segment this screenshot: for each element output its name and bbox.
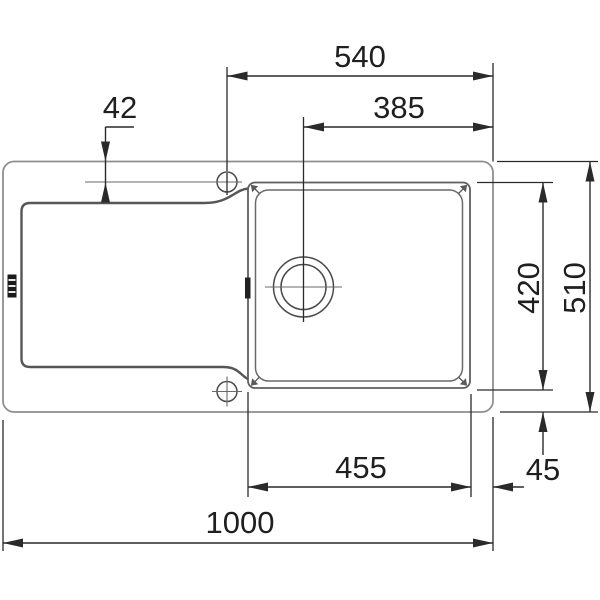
dim-overall-depth: 510 — [557, 162, 595, 413]
dim-bowl-width: 455 — [248, 450, 471, 492]
extension-lines — [3, 63, 598, 551]
sink-body — [3, 162, 493, 413]
dim-overall-width: 1000 — [3, 505, 493, 548]
dim-tap-to-right-edge: 540 — [227, 39, 493, 81]
franke-logo-badge — [8, 275, 17, 298]
dim-label-42: 42 — [103, 90, 137, 125]
dim-label-385: 385 — [373, 90, 425, 125]
dim-tap-from-top-edge: 42 — [101, 90, 137, 203]
overflow-slot — [245, 278, 251, 299]
dim-drain-to-right-edge: 385 — [304, 90, 494, 132]
dim-bowl-depth: 420 — [511, 183, 548, 391]
technical-drawing-page: 540 385 42 420 510 455 — [0, 0, 600, 600]
bowl-corner-marks — [251, 185, 467, 386]
bowl-inner-edge — [256, 190, 463, 381]
sink-dimension-diagram: 540 385 42 420 510 455 — [0, 0, 600, 600]
dim-label-1000: 1000 — [206, 505, 275, 540]
dim-label-420: 420 — [511, 262, 546, 314]
tap-hole-bottom — [212, 377, 242, 407]
dim-label-540: 540 — [334, 39, 386, 74]
tap-hole-top — [85, 172, 242, 192]
drainboard-outline — [22, 189, 249, 380]
dim-label-455: 455 — [335, 450, 387, 485]
dim-label-510: 510 — [557, 262, 592, 314]
dim-label-45: 45 — [526, 452, 560, 487]
dim-bowl-to-edge-gap: 45 — [493, 412, 560, 492]
